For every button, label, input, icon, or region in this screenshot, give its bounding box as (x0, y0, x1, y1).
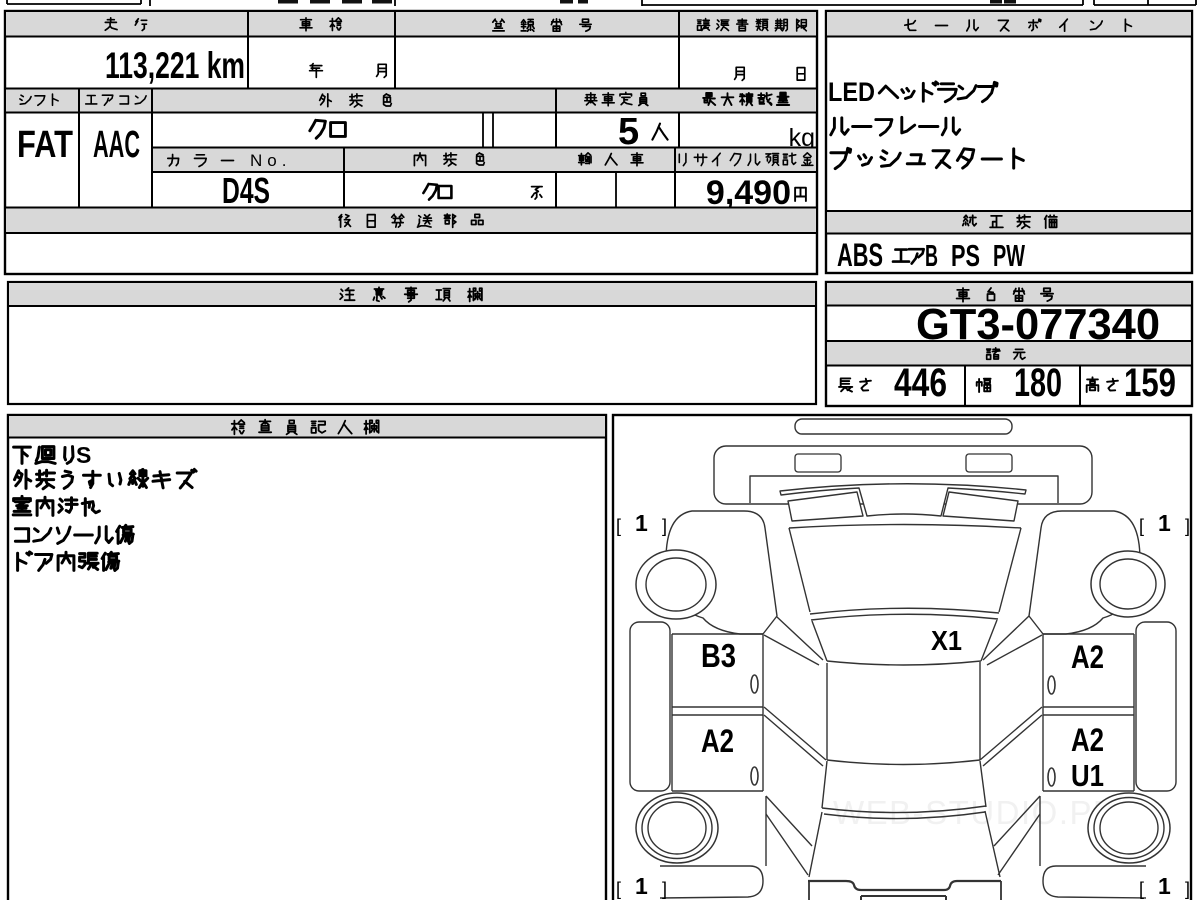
svg-text:PW: PW (993, 238, 1025, 273)
svg-text:1: 1 (1158, 510, 1171, 536)
svg-text:[: [ (616, 516, 621, 536)
svg-text:A2: A2 (1071, 639, 1104, 675)
svg-text:]: ] (662, 879, 667, 899)
svg-text:No.: No. (250, 151, 291, 170)
svg-text:A2: A2 (1071, 722, 1104, 758)
svg-text:U1: U1 (1071, 758, 1104, 793)
svg-text:1: 1 (635, 510, 648, 536)
svg-text:1: 1 (1158, 873, 1171, 899)
svg-text:B: B (925, 238, 938, 273)
svg-text:LED: LED (828, 77, 875, 107)
svg-text:A2: A2 (701, 723, 734, 759)
svg-text:FAT: FAT (17, 124, 73, 166)
svg-text:446: 446 (894, 361, 947, 405)
svg-text:113,221 km: 113,221 km (105, 45, 245, 86)
svg-text:ABS: ABS (837, 237, 883, 273)
svg-text:]: ] (1185, 516, 1190, 536)
svg-text:1: 1 (635, 873, 648, 899)
svg-text:9,490: 9,490 (706, 174, 791, 212)
svg-text:D4S: D4S (222, 170, 270, 211)
svg-text:PS: PS (951, 238, 980, 273)
svg-text:B3: B3 (701, 637, 736, 674)
svg-text:AAC: AAC (93, 124, 140, 166)
svg-text:159: 159 (1124, 361, 1176, 405)
svg-text:]: ] (662, 516, 667, 536)
svg-text:180: 180 (1014, 361, 1062, 405)
svg-text:[: [ (616, 879, 621, 899)
svg-text:X1: X1 (931, 625, 962, 656)
svg-text:[: [ (1139, 879, 1144, 899)
svg-text:]: ] (1185, 879, 1190, 899)
svg-text:S: S (76, 442, 91, 468)
svg-text:[: [ (1139, 516, 1144, 536)
